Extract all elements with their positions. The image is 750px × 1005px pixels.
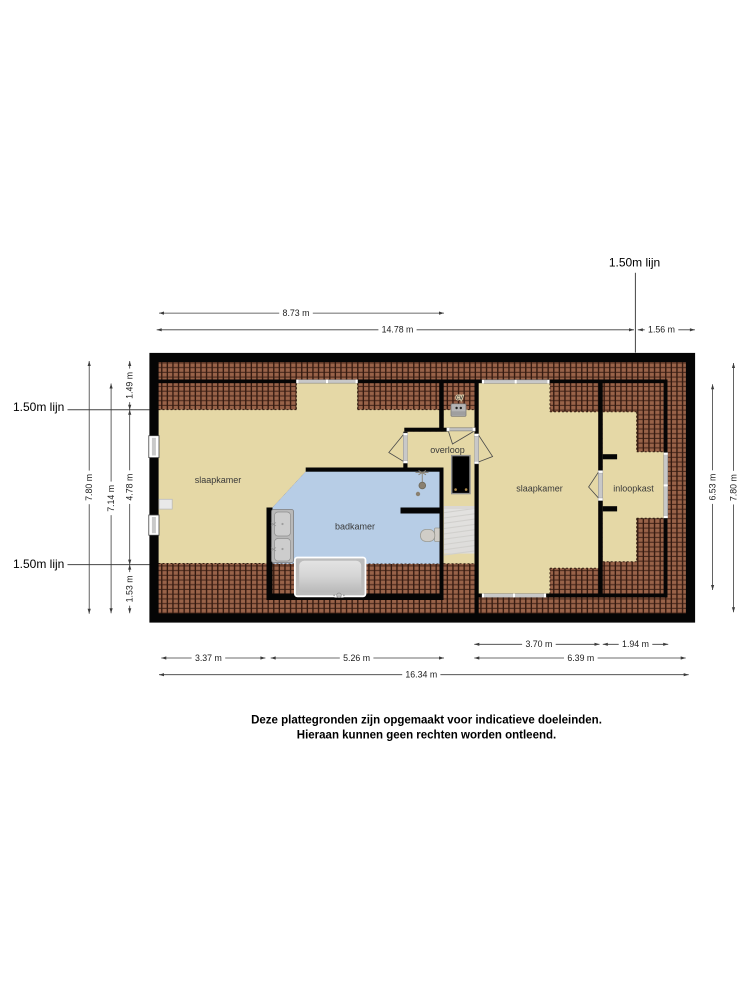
svg-text:5.26 m: 5.26 m <box>343 653 370 663</box>
svg-text:7.80 m: 7.80 m <box>84 474 94 501</box>
svg-text:Hieraan kunnen geen rechten wo: Hieraan kunnen geen rechten worden ontle… <box>297 729 556 741</box>
svg-text:cv: cv <box>456 395 464 402</box>
svg-text:inloopkast: inloopkast <box>613 483 654 493</box>
svg-text:1.49 m: 1.49 m <box>125 372 135 399</box>
svg-text:3.37 m: 3.37 m <box>195 653 222 663</box>
svg-text:badkamer: badkamer <box>335 521 375 531</box>
svg-text:1.50m lijn: 1.50m lijn <box>13 400 64 414</box>
svg-text:1.50m lijn: 1.50m lijn <box>609 256 660 270</box>
svg-text:slaapkamer: slaapkamer <box>195 475 242 485</box>
svg-text:4.78 m: 4.78 m <box>125 474 135 501</box>
svg-text:1.53 m: 1.53 m <box>125 575 135 602</box>
svg-text:8.73 m: 8.73 m <box>283 308 310 318</box>
svg-text:1.94 m: 1.94 m <box>622 639 649 649</box>
svg-text:3.70 m: 3.70 m <box>525 639 552 649</box>
svg-text:slaapkamer: slaapkamer <box>516 484 563 494</box>
svg-text:1.56 m: 1.56 m <box>648 325 675 335</box>
svg-text:overloop: overloop <box>430 445 465 455</box>
svg-text:14.78 m: 14.78 m <box>382 325 414 335</box>
svg-text:Deze plattegronden zijn opgema: Deze plattegronden zijn opgemaakt voor i… <box>251 715 602 727</box>
svg-text:7.80 m: 7.80 m <box>728 474 738 501</box>
svg-text:6.53 m: 6.53 m <box>708 474 718 501</box>
svg-text:7.14 m: 7.14 m <box>106 485 116 512</box>
svg-text:1.50m lijn: 1.50m lijn <box>13 557 64 571</box>
svg-text:6.39 m: 6.39 m <box>567 653 594 663</box>
svg-text:16.34 m: 16.34 m <box>405 670 437 680</box>
